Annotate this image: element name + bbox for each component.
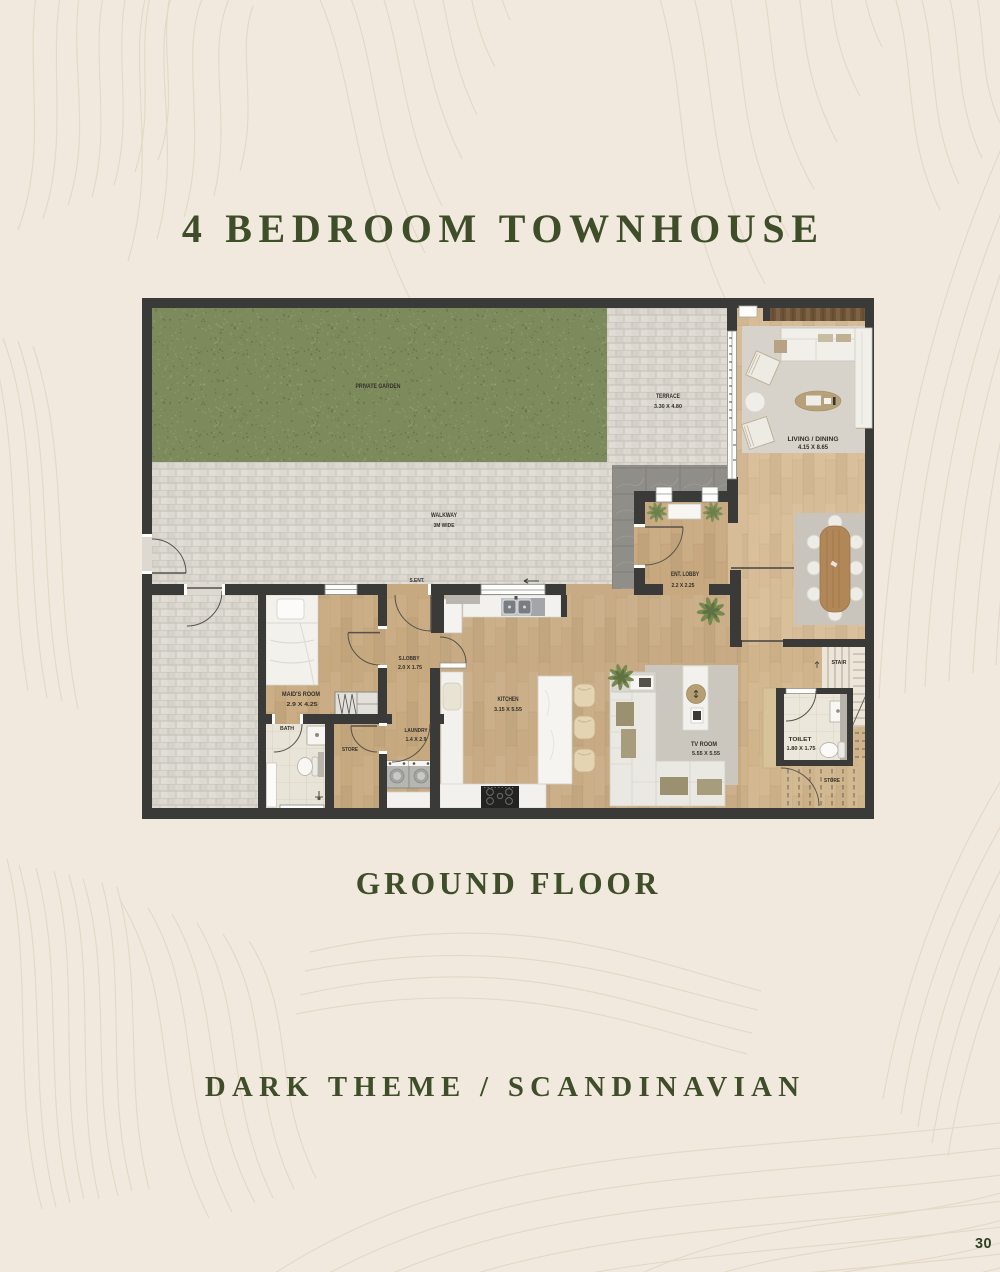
svg-text:ENT. LOBBY: ENT. LOBBY <box>671 572 699 578</box>
svg-text:WALKWAY: WALKWAY <box>431 513 457 519</box>
svg-text:1.80 X 1.75: 1.80 X 1.75 <box>787 746 816 752</box>
svg-text:TV ROOM: TV ROOM <box>691 742 717 748</box>
svg-text:STAIR: STAIR <box>832 660 848 666</box>
svg-text:STORE: STORE <box>824 778 840 784</box>
svg-text:3.30 X 4.80: 3.30 X 4.80 <box>654 404 682 410</box>
svg-text:PRIVATE GARDEN: PRIVATE GARDEN <box>356 383 401 390</box>
svg-text:S.ENT.: S.ENT. <box>410 578 425 584</box>
svg-text:S.LOBBY: S.LOBBY <box>399 656 420 662</box>
svg-text:3.15 X 5.55: 3.15 X 5.55 <box>494 707 522 713</box>
svg-text:TERRACE: TERRACE <box>656 393 680 400</box>
svg-text:2.9 X 4.25: 2.9 X 4.25 <box>287 702 318 708</box>
svg-text:2.0 X 1.75: 2.0 X 1.75 <box>398 665 422 671</box>
svg-text:STORE: STORE <box>342 747 358 753</box>
svg-text:1.4 X 2.9: 1.4 X 2.9 <box>406 737 427 743</box>
svg-text:5.55 X 5.55: 5.55 X 5.55 <box>692 751 720 757</box>
svg-text:LIVING / DINING: LIVING / DINING <box>788 436 839 443</box>
svg-text:KITCHEN: KITCHEN <box>498 697 519 703</box>
svg-text:2.2 X 2.25: 2.2 X 2.25 <box>672 583 695 589</box>
svg-text:TOILET: TOILET <box>789 737 813 743</box>
svg-text:BATH: BATH <box>280 726 294 732</box>
svg-text:4.15 X 8.65: 4.15 X 8.65 <box>798 445 829 451</box>
svg-text:3M WIDE: 3M WIDE <box>434 523 455 529</box>
svg-text:MAID'S ROOM: MAID'S ROOM <box>282 692 320 698</box>
svg-text:LAUNDRY: LAUNDRY <box>405 728 428 734</box>
